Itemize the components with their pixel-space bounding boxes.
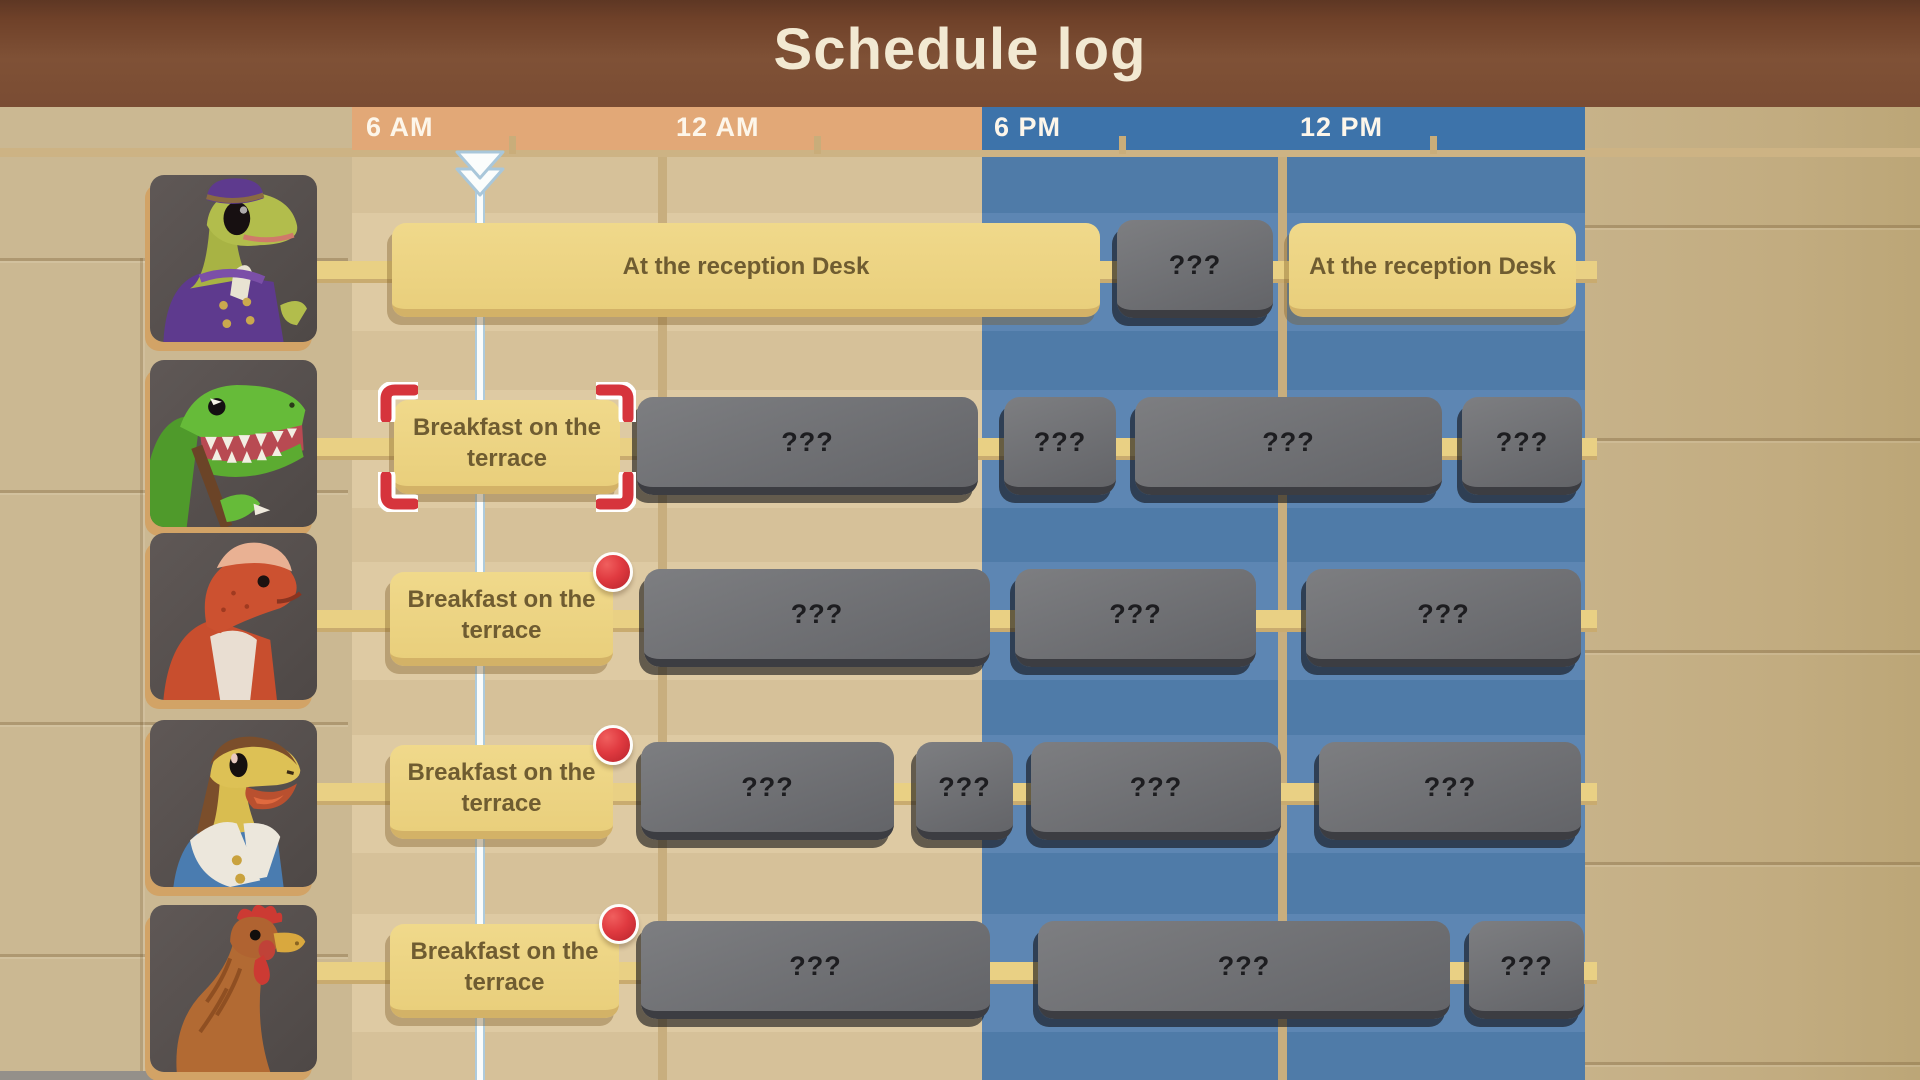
baseboard xyxy=(0,1071,266,1080)
schedule-unknown-block[interactable]: ??? xyxy=(1319,742,1581,840)
block-label: ??? xyxy=(777,599,857,630)
green-raptor-portrait-image xyxy=(150,360,317,527)
schedule-activity-block[interactable]: Breakfast on the terrace xyxy=(390,745,613,839)
rooster-portrait-image xyxy=(150,905,317,1072)
block-label: ??? xyxy=(1155,250,1235,281)
block-label: At the reception Desk xyxy=(1295,251,1570,282)
red-pachy-dinosaur-portrait xyxy=(150,533,317,700)
time-label: 6 PM xyxy=(994,107,1061,150)
schedule-log-screen: 6 AM12 AM6 PM12 PM At the reception Desk… xyxy=(0,0,1920,1080)
alert-dot xyxy=(593,725,633,765)
block-label: At the reception Desk xyxy=(609,251,884,282)
wall-groove xyxy=(1585,438,1920,441)
schedule-activity-block[interactable]: Breakfast on the terrace xyxy=(390,572,613,666)
wall-groove xyxy=(1585,650,1920,653)
block-label: ??? xyxy=(1204,951,1284,982)
current-time-arrow-icon xyxy=(451,149,509,203)
schedule-unknown-block[interactable]: ??? xyxy=(1004,397,1116,495)
block-label: ??? xyxy=(924,772,1004,803)
block-label: ??? xyxy=(1482,427,1562,458)
selection-corner xyxy=(596,382,636,422)
schedule-unknown-block[interactable]: ??? xyxy=(1038,921,1450,1019)
page-title: Schedule log xyxy=(0,16,1920,83)
selection-corner xyxy=(378,382,418,422)
time-tick xyxy=(814,136,821,154)
schedule-unknown-block[interactable]: ??? xyxy=(1469,921,1584,1019)
schedule-unknown-block[interactable]: ??? xyxy=(1117,220,1273,318)
block-label: ??? xyxy=(727,772,807,803)
schedule-unknown-block[interactable]: ??? xyxy=(1135,397,1442,495)
time-tick xyxy=(1430,136,1437,154)
timeline-header-am xyxy=(352,107,982,150)
schedule-unknown-block[interactable]: ??? xyxy=(1015,569,1256,667)
bellhop-dinosaur-portrait-image xyxy=(150,175,317,342)
block-label: Breakfast on the terrace xyxy=(390,757,613,819)
block-label: ??? xyxy=(1403,599,1483,630)
time-label: 6 AM xyxy=(366,107,434,150)
block-label: ??? xyxy=(767,427,847,458)
red-pachy-dinosaur-portrait-image xyxy=(150,533,317,700)
schedule-activity-block[interactable]: At the reception Desk xyxy=(1289,223,1576,317)
wall-groove xyxy=(1585,1062,1920,1065)
alert-dot xyxy=(599,904,639,944)
block-label: ??? xyxy=(1116,772,1196,803)
block-label: ??? xyxy=(1486,951,1566,982)
yellow-dinosaur-in-vest-portrait-image xyxy=(150,720,317,887)
timeline-header-pm xyxy=(982,107,1585,150)
schedule-unknown-block[interactable]: ??? xyxy=(1306,569,1581,667)
schedule-activity-block[interactable]: Breakfast on the terrace xyxy=(394,400,620,494)
green-raptor-portrait xyxy=(150,360,317,527)
block-label: ??? xyxy=(1095,599,1175,630)
alert-dot xyxy=(593,552,633,592)
schedule-unknown-block[interactable]: ??? xyxy=(1462,397,1582,495)
bellhop-dinosaur-portrait xyxy=(150,175,317,342)
block-label: ??? xyxy=(1410,772,1490,803)
block-label: Breakfast on the terrace xyxy=(394,412,620,474)
wall-groove xyxy=(1585,862,1920,865)
block-label: ??? xyxy=(1020,427,1100,458)
selection-corner xyxy=(378,472,418,512)
wall-groove-vertical xyxy=(140,258,143,1080)
wall-right-panel xyxy=(1585,107,1920,1080)
schedule-activity-block[interactable]: Breakfast on the terrace xyxy=(390,924,619,1018)
block-label: ??? xyxy=(1248,427,1328,458)
schedule-unknown-block[interactable]: ??? xyxy=(644,569,990,667)
title-bar: Schedule log xyxy=(0,0,1920,107)
time-tick xyxy=(1119,136,1126,154)
wall-groove xyxy=(1585,225,1920,228)
time-label: 12 AM xyxy=(676,107,760,150)
schedule-activity-block[interactable]: At the reception Desk xyxy=(392,223,1100,317)
time-tick xyxy=(509,136,516,154)
schedule-unknown-block[interactable]: ??? xyxy=(641,742,894,840)
yellow-dinosaur-in-vest-portrait xyxy=(150,720,317,887)
rooster-portrait xyxy=(150,905,317,1072)
selection-corner xyxy=(596,472,636,512)
block-label: ??? xyxy=(775,951,855,982)
block-label: Breakfast on the terrace xyxy=(390,936,619,998)
schedule-unknown-block[interactable]: ??? xyxy=(641,921,990,1019)
schedule-unknown-block[interactable]: ??? xyxy=(637,397,978,495)
block-label: Breakfast on the terrace xyxy=(390,584,613,646)
time-label: 12 PM xyxy=(1300,107,1383,150)
schedule-unknown-block[interactable]: ??? xyxy=(1031,742,1281,840)
schedule-unknown-block[interactable]: ??? xyxy=(916,742,1013,840)
